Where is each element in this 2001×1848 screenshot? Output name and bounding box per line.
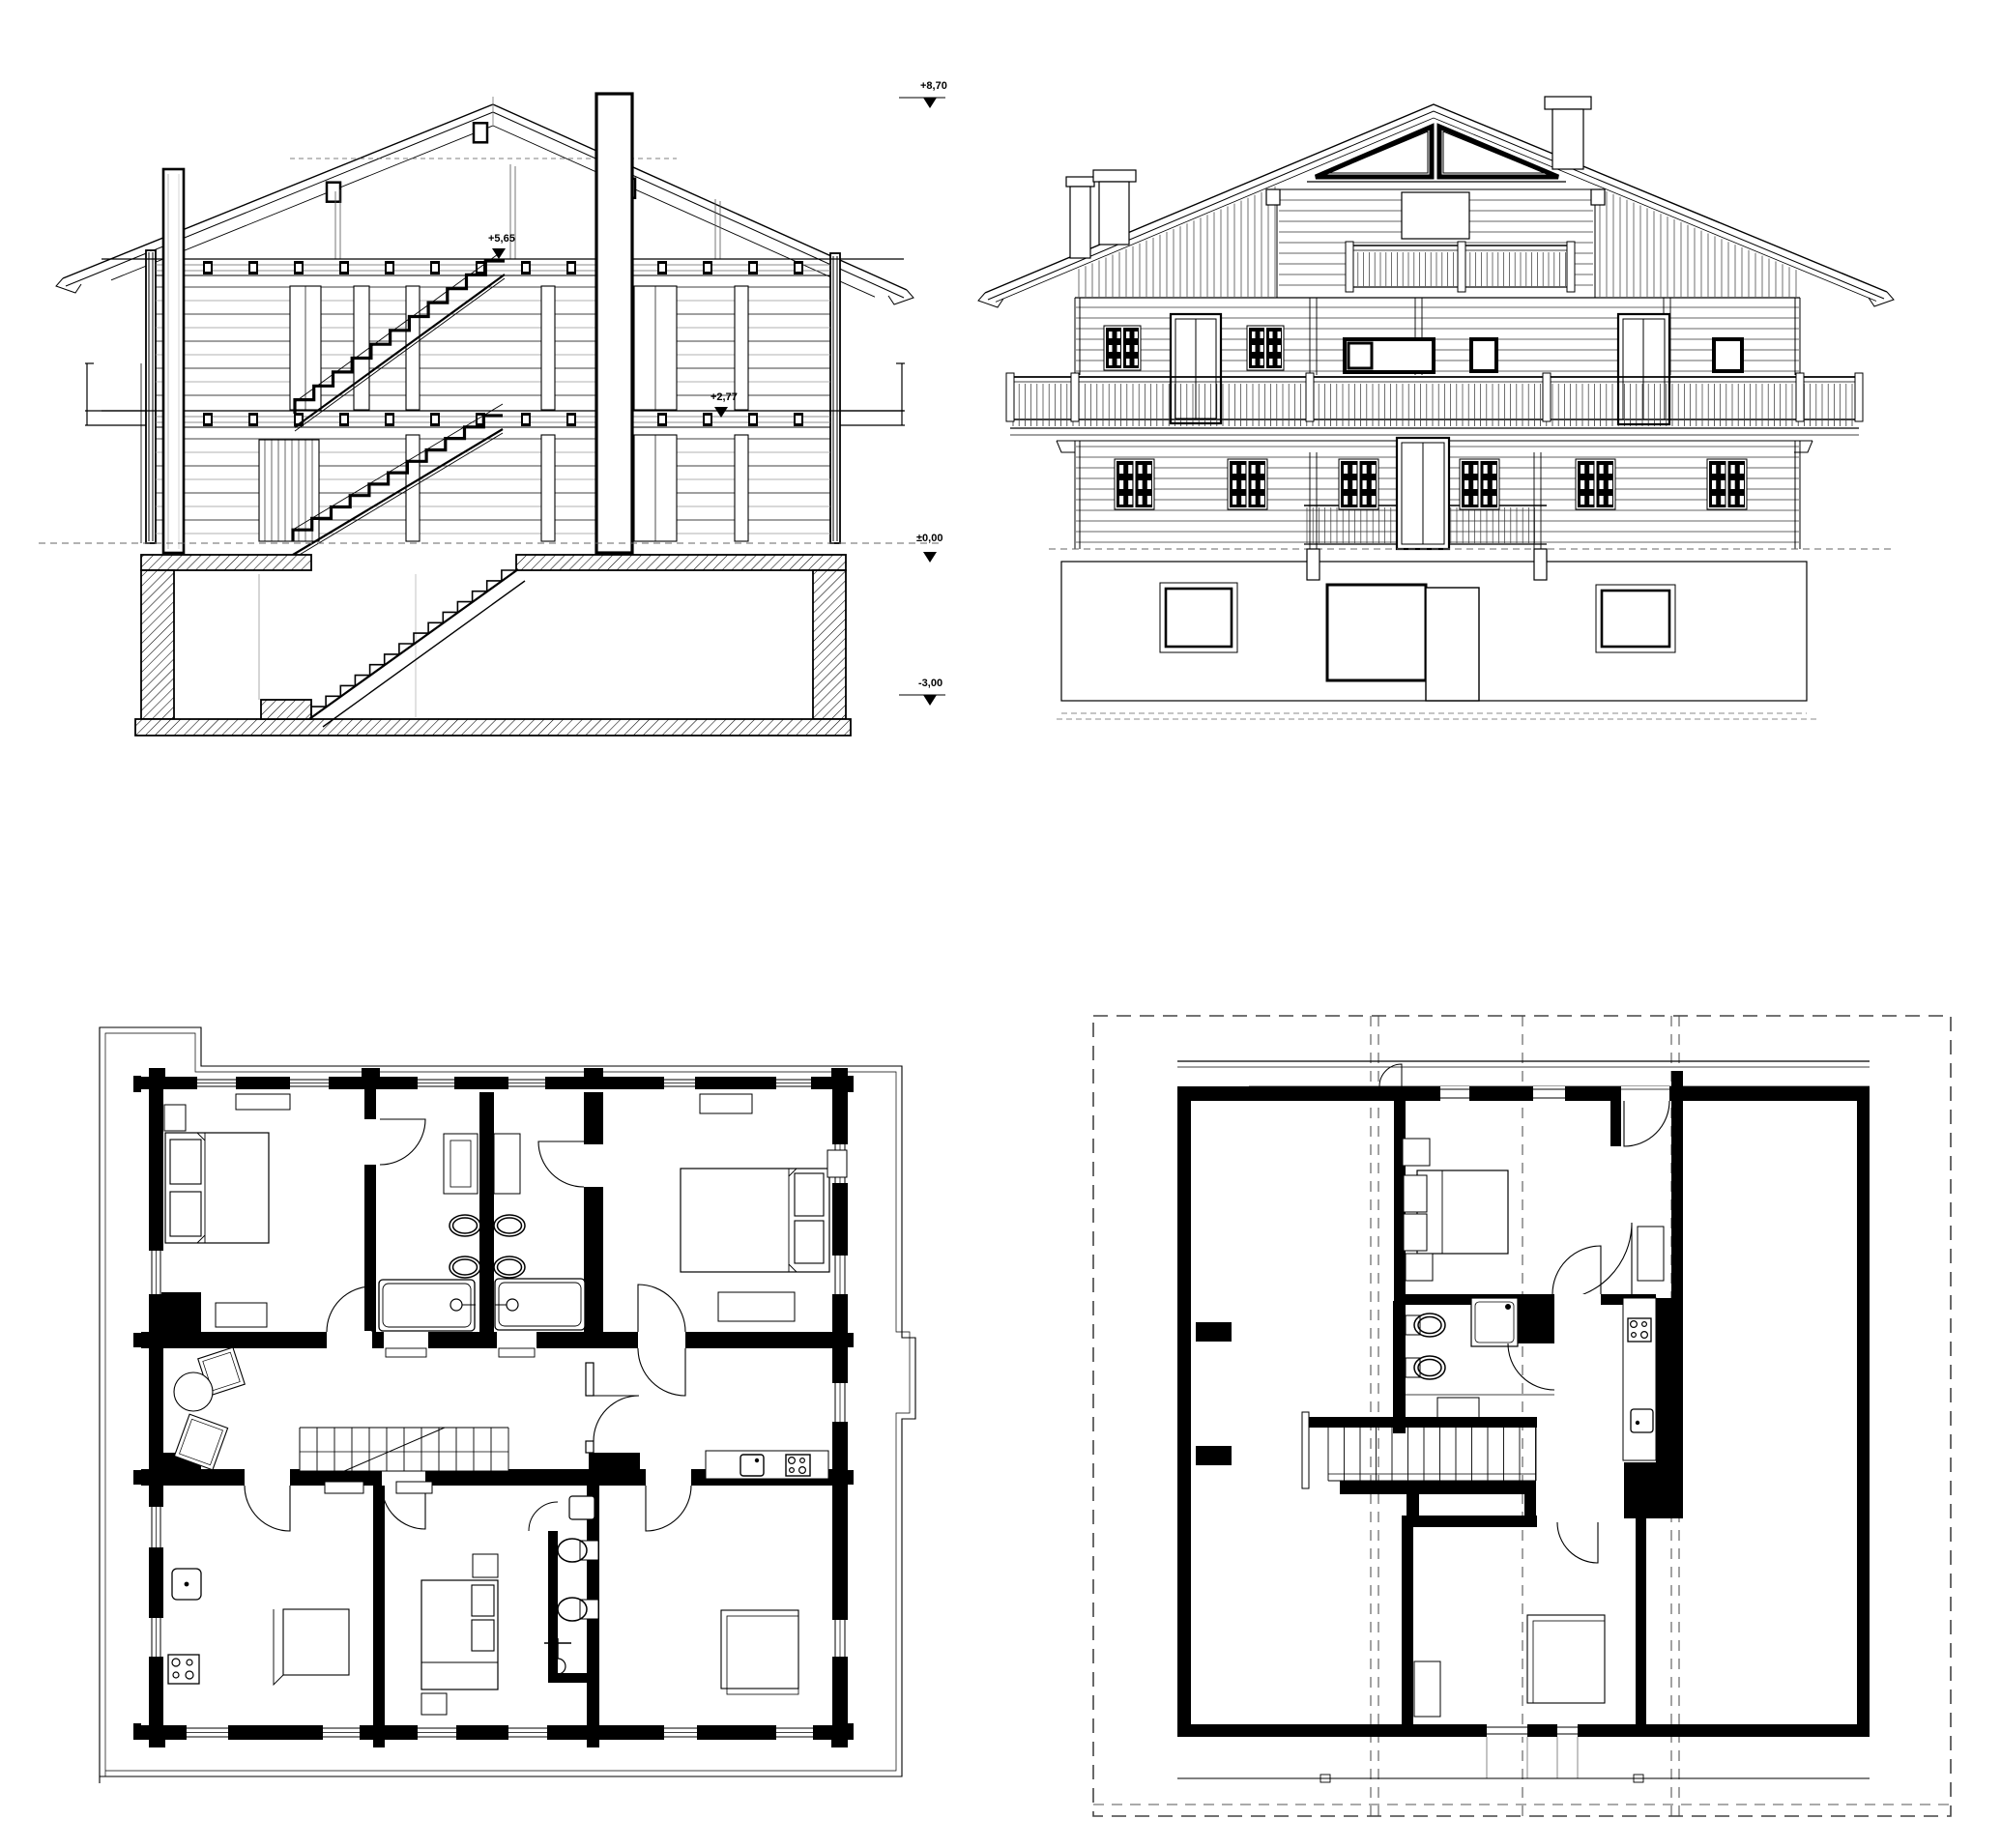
svg-text:+8,70: +8,70: [920, 80, 947, 92]
svg-text:+2,77: +2,77: [710, 391, 738, 403]
svg-text:+5,65: +5,65: [488, 233, 515, 245]
svg-text:±0,00: ±0,00: [916, 533, 942, 544]
svg-text:-3,00: -3,00: [918, 678, 942, 689]
